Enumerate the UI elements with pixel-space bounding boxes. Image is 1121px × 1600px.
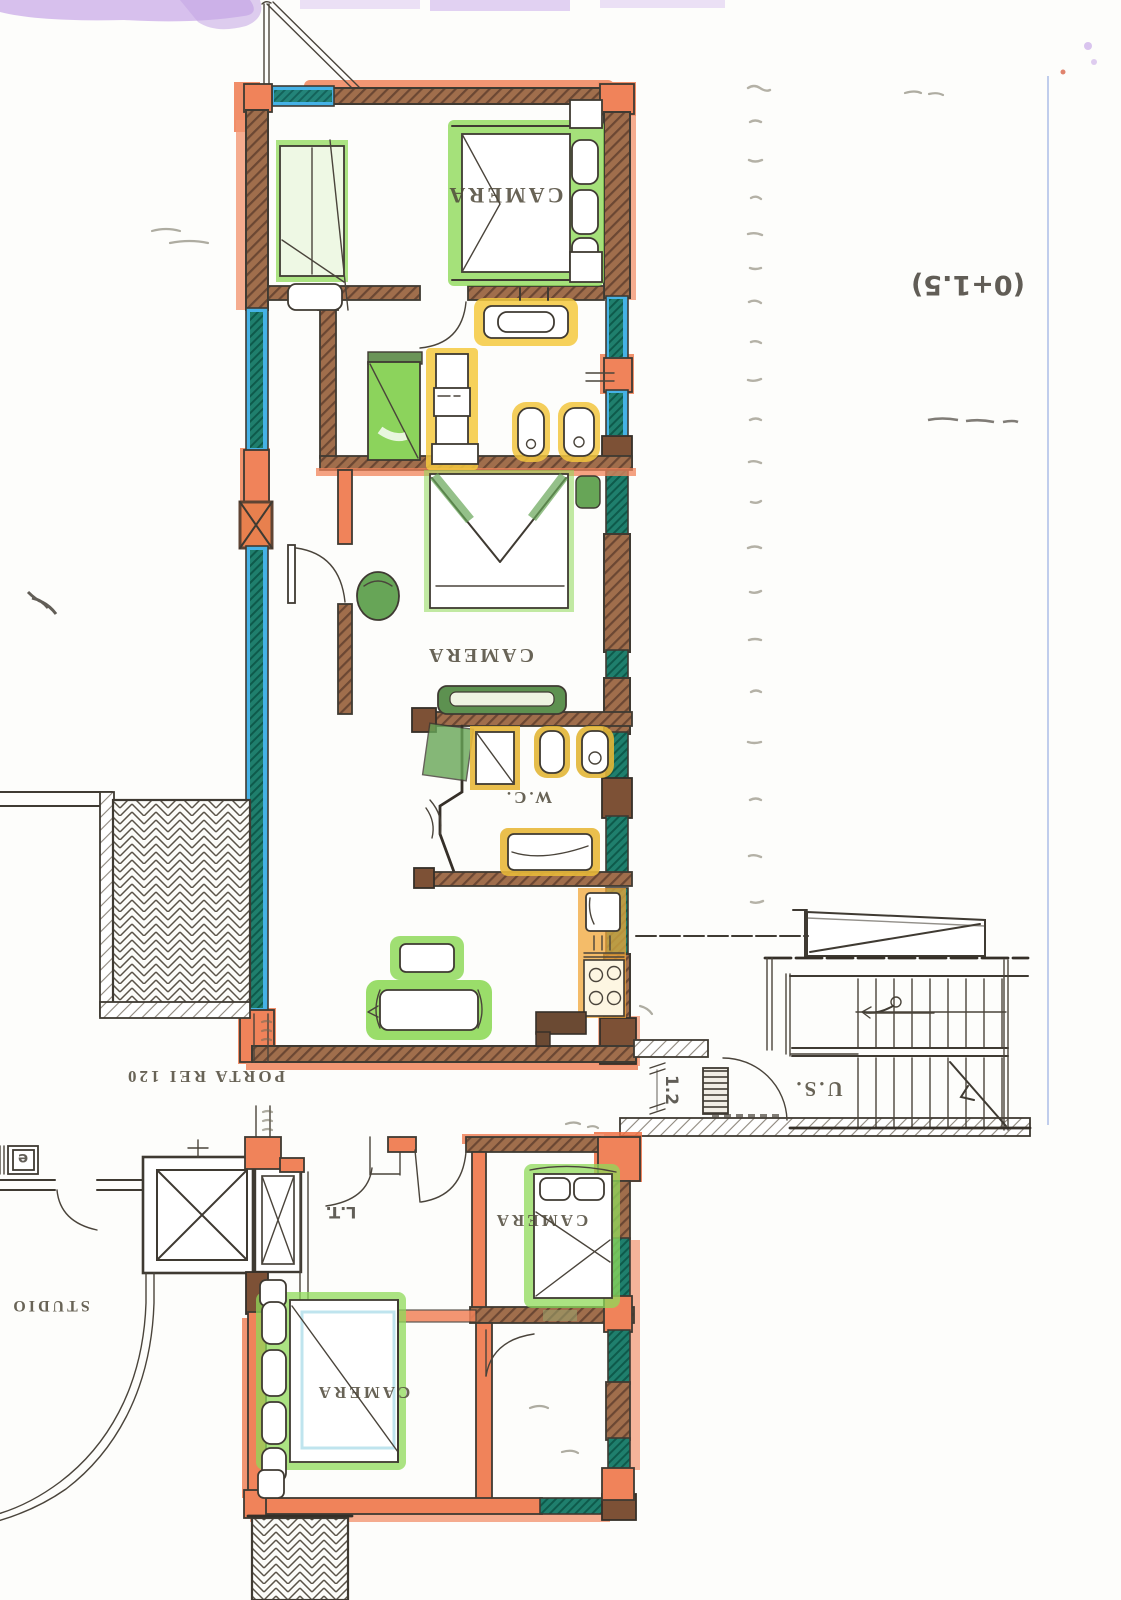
bathroom1-fixtures — [368, 288, 600, 470]
safety-exit-door — [703, 1058, 787, 1120]
stair-treads — [856, 979, 1006, 1128]
level-annotation: (0+1.5) — [911, 269, 1025, 300]
bedroom2-label: CAMERA — [426, 644, 534, 666]
door-width-dimension: 1.2 — [650, 1063, 681, 1114]
bedroom1-label: CAMERA — [447, 183, 564, 208]
fire-door-label: PORTA REI 120 — [125, 1067, 285, 1086]
faded-handwriting-column — [748, 86, 770, 903]
left-balcony — [0, 792, 250, 1018]
floor-plan-scan: (0+1.5) — [0, 0, 1121, 1600]
bedroom3-label: CAMERA — [494, 1211, 589, 1230]
safety-exit-label: U.S. — [793, 1077, 842, 1101]
utility-label: e — [18, 1150, 28, 1168]
bottom-balcony — [248, 1516, 352, 1600]
bathroom2-label: W.C. — [504, 788, 552, 807]
utility-symbol: e — [0, 1146, 38, 1174]
ramp — [793, 910, 985, 958]
bedroom3-furniture — [524, 1164, 620, 1308]
door-width-label: 1.2 — [661, 1075, 681, 1105]
upper-apartment: CAMERA — [234, 2, 652, 1070]
direction-arrow — [862, 997, 934, 1018]
hall-label: L.T. — [326, 1203, 357, 1222]
level-label: (0+1.5) — [911, 269, 1025, 300]
floor-plan-drawing: (0+1.5) — [0, 0, 1121, 1600]
wc-bidet — [512, 402, 600, 462]
bedroom4-label: CAMERA — [316, 1383, 411, 1402]
studio-label: STUDIO — [10, 1297, 89, 1314]
